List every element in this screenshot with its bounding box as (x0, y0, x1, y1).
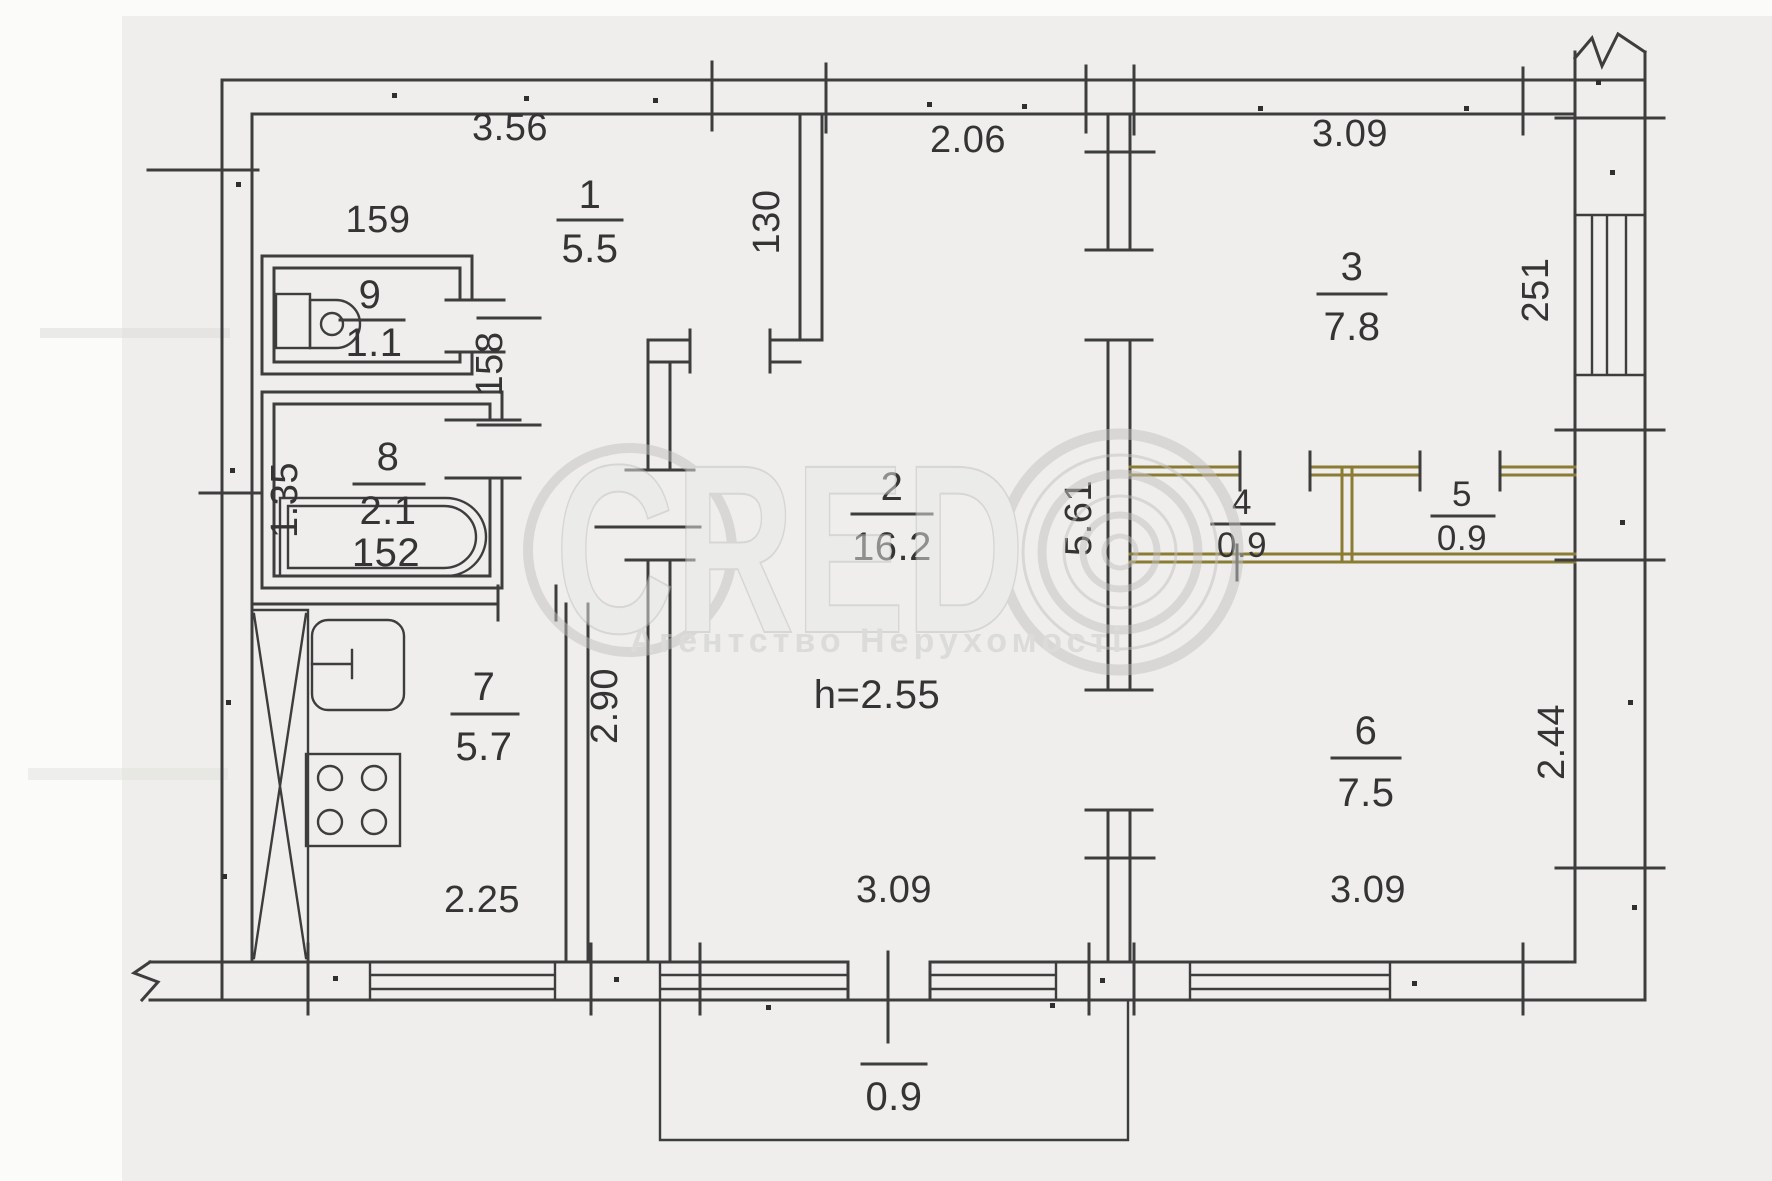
dim-room6-right: 2.44 (1531, 704, 1573, 780)
room-area: 5.5 (561, 227, 618, 271)
dim-room2-bottom: 3.09 (856, 869, 932, 911)
dim-hall-top: 3.56 (472, 107, 548, 149)
room-number: 1 (579, 173, 602, 217)
floor-plan-canvas: 3.56 159 2.06 3.09 130 158 1.35 2.90 5.6… (0, 0, 1772, 1181)
room-area: 7.5 (1337, 771, 1394, 815)
dim-corridor: 158 (469, 332, 511, 397)
dim-kitchen-bottom: 2.25 (444, 879, 520, 921)
room-number: 5 (1452, 475, 1472, 514)
scan-streak (28, 768, 228, 780)
room-number: 7 (473, 665, 496, 709)
room-number: 8 (377, 435, 400, 479)
dim-room8-left: 1.35 (264, 462, 306, 538)
room-area: 2.1 (359, 489, 416, 533)
watermark-tagline: Агентство Нерухомості (629, 622, 1126, 660)
room-area: 7.8 (1323, 305, 1380, 349)
dim-room9-width: 159 (346, 199, 411, 241)
room-area: 0.9 (1437, 519, 1487, 558)
dim-loggia-right: 251 (1515, 258, 1557, 323)
dim-room6-bottom: 3.09 (1330, 869, 1406, 911)
room-width-note: 152 (352, 531, 420, 575)
dim-hall-right: 130 (746, 190, 788, 255)
dim-room2-top: 2.06 (930, 119, 1006, 161)
scan-streak (40, 328, 230, 338)
dim-room3-top: 3.09 (1312, 113, 1388, 155)
room-number: 6 (1355, 709, 1378, 753)
room-area: 1.1 (345, 321, 402, 365)
room-area: 5.7 (455, 725, 512, 769)
room-number: 3 (1341, 245, 1364, 289)
room-number: 9 (359, 273, 382, 317)
balcony-area: 0.9 (865, 1075, 922, 1119)
